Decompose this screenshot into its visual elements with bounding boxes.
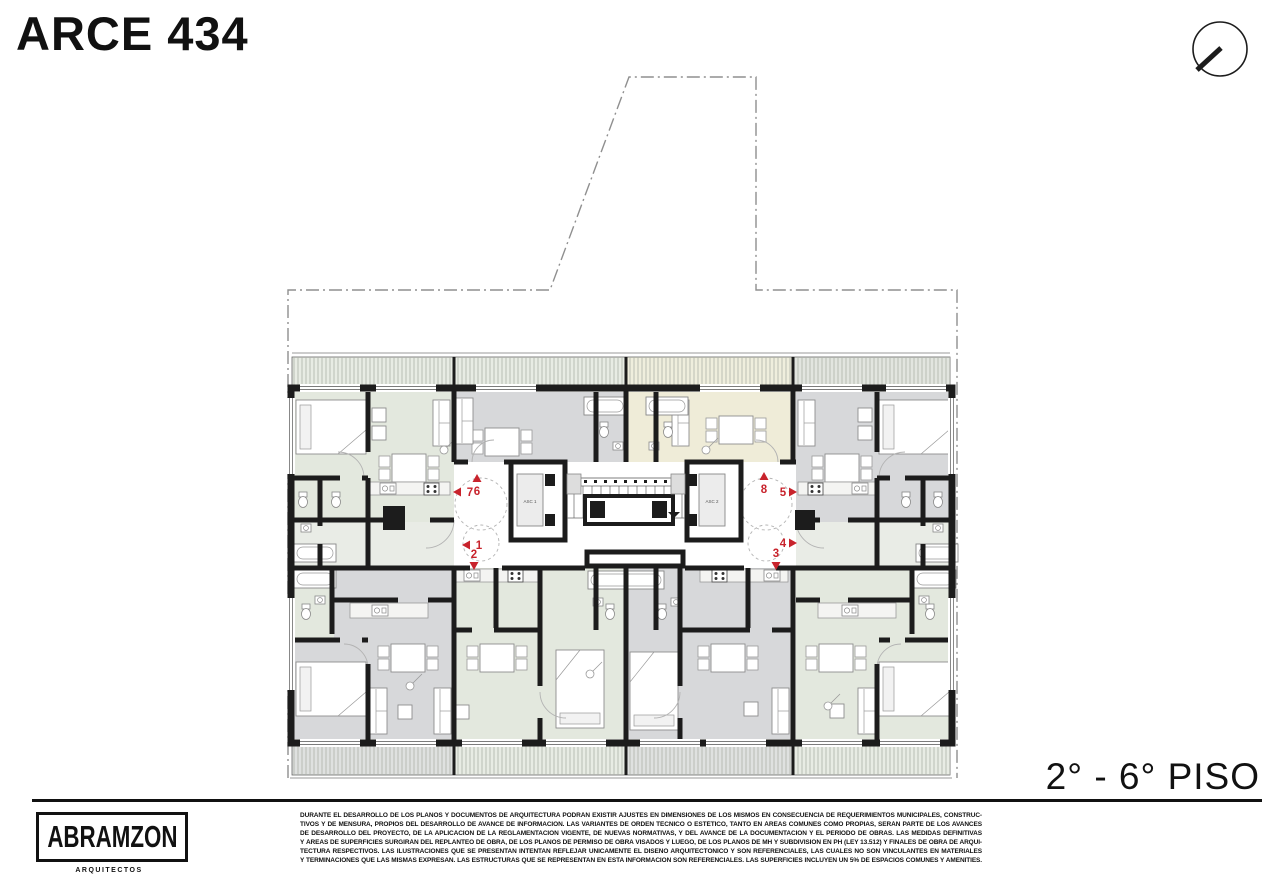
floor-label: 2° - 6° PISO (1046, 756, 1260, 798)
corridor-wall (587, 552, 683, 566)
balcony-bottom (290, 743, 952, 778)
firm-name: ABRAMZON (47, 819, 177, 855)
floor-plan: ASC 1 ASC 2 (0, 0, 1280, 881)
disclaimer-line: TECTURA RESPECTIVOS. LAS ILUSTRACIONES Q… (300, 848, 982, 857)
disclaimer: DURANTE EL DESARROLLO DE LOS PLANOS Y DO… (300, 812, 982, 865)
svg-text:4: 4 (780, 538, 787, 550)
balcony-top (292, 353, 950, 388)
firm-logo: ABRAMZON ARQUITECTOS (36, 812, 188, 874)
footer-rule (32, 799, 1262, 802)
svg-text:7: 7 (467, 487, 473, 499)
svg-text:5: 5 (780, 487, 787, 499)
disclaimer-line: DURANTE EL DESARROLLO DE LOS PLANOS Y DO… (300, 812, 982, 821)
svg-text:2: 2 (471, 549, 477, 561)
sheet: ARCE 434 (0, 0, 1280, 881)
svg-text:6: 6 (474, 486, 480, 498)
disclaimer-line: Y ÁREAS DE SUPERFICIES SURGIRÁN DEL REPL… (300, 839, 982, 848)
elevator-right-label: ASC 2 (705, 499, 719, 504)
disclaimer-line: Y TERMINACIONES QUE LAS MISMAS EXPRESAN.… (300, 857, 982, 866)
svg-text:3: 3 (773, 548, 779, 560)
firm-logo-box: ABRAMZON (36, 812, 188, 862)
svg-text:8: 8 (761, 484, 768, 496)
disclaimer-line: TIVOS Y DE MENSURA, PROPIOS DEL DESARROL… (300, 821, 982, 830)
disclaimer-line: DE DESARROLLO DEL PROYECTO, DE LA APLICA… (300, 830, 982, 839)
firm-subtitle: ARQUITECTOS (36, 867, 182, 874)
elevator-left-label: ASC 1 (523, 499, 537, 504)
